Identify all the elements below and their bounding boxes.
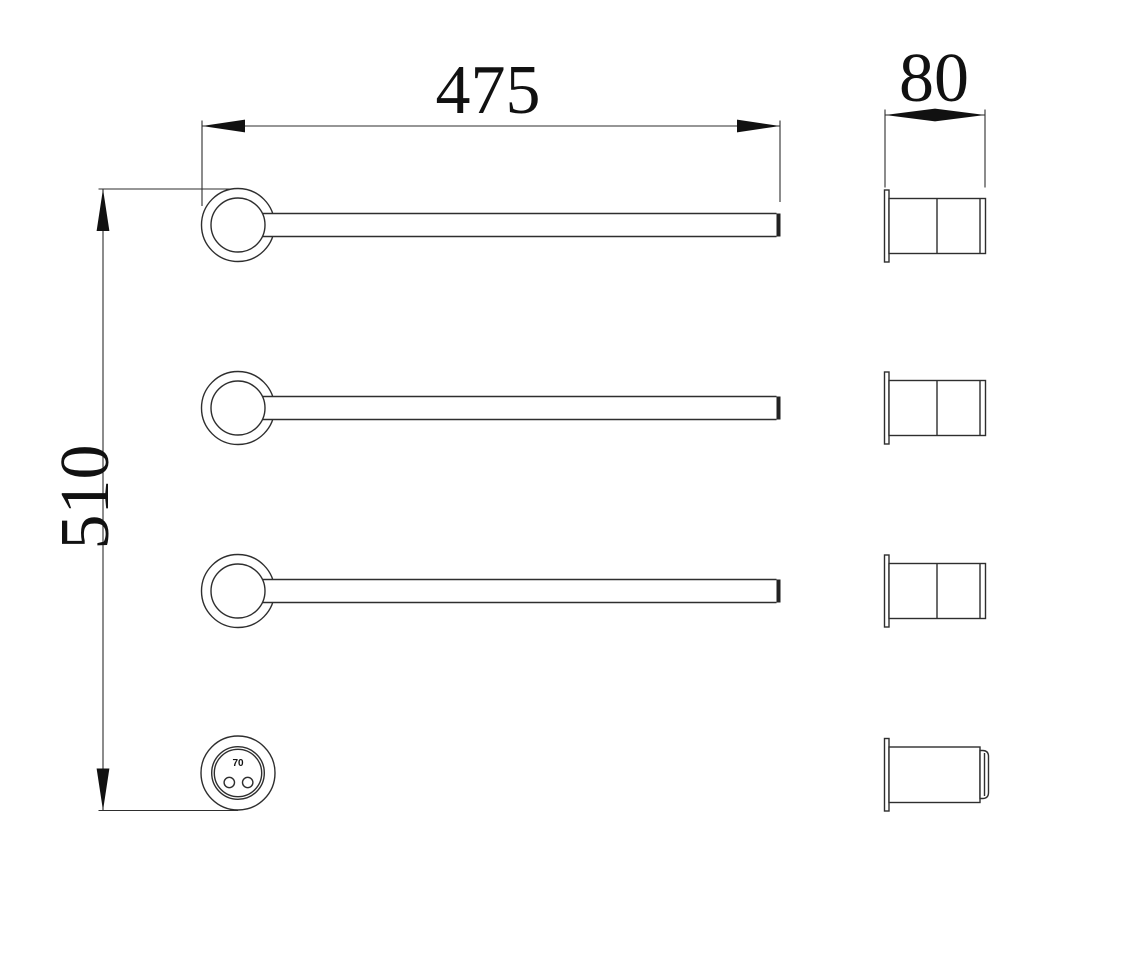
bar-end-cap — [777, 580, 781, 603]
dimension-height-label: 510 — [47, 445, 124, 550]
towel-bar-3 — [202, 555, 781, 628]
front-view: 70 — [201, 189, 781, 811]
connector-collar-outer — [212, 747, 265, 800]
connector-pin-hole-left — [224, 777, 234, 787]
bar-boss-inner — [211, 564, 265, 618]
dimension-width: 475 — [202, 52, 780, 206]
dimension-width-label: 475 — [436, 52, 541, 129]
dimension-depth-label: 80 — [899, 40, 969, 117]
bar-end-cap — [777, 214, 781, 237]
side-view — [885, 190, 989, 811]
arrow-down-icon — [97, 769, 110, 811]
towel-rail-drawing: 475 510 80 — [0, 0, 1129, 966]
power-connector: 70 — [201, 736, 275, 810]
side-mount-4 — [885, 739, 989, 812]
dimension-height: 510 — [47, 189, 238, 811]
towel-bar-2 — [202, 372, 781, 445]
bar-boss-inner — [211, 198, 265, 252]
side-mount-3 — [885, 555, 986, 627]
connector-pin-hole-right — [243, 777, 253, 787]
bar-end-cap — [777, 397, 781, 420]
side-mount-1 — [885, 190, 986, 262]
bar-boss-inner — [211, 381, 265, 435]
arrow-right-icon — [737, 120, 780, 133]
bar-body — [238, 580, 777, 603]
bar-body — [238, 214, 777, 237]
arrow-left-icon — [202, 120, 245, 133]
mount-body — [889, 747, 980, 803]
arrow-up-icon — [97, 189, 110, 231]
side-mount-2 — [885, 372, 986, 444]
technical-drawing-page: 475 510 80 — [0, 0, 1129, 966]
bar-body — [238, 397, 777, 420]
dimension-depth: 80 — [885, 40, 985, 188]
connector-collar-inner — [214, 749, 261, 796]
towel-bar-1 — [202, 189, 781, 262]
connector-label: 70 — [232, 758, 244, 769]
